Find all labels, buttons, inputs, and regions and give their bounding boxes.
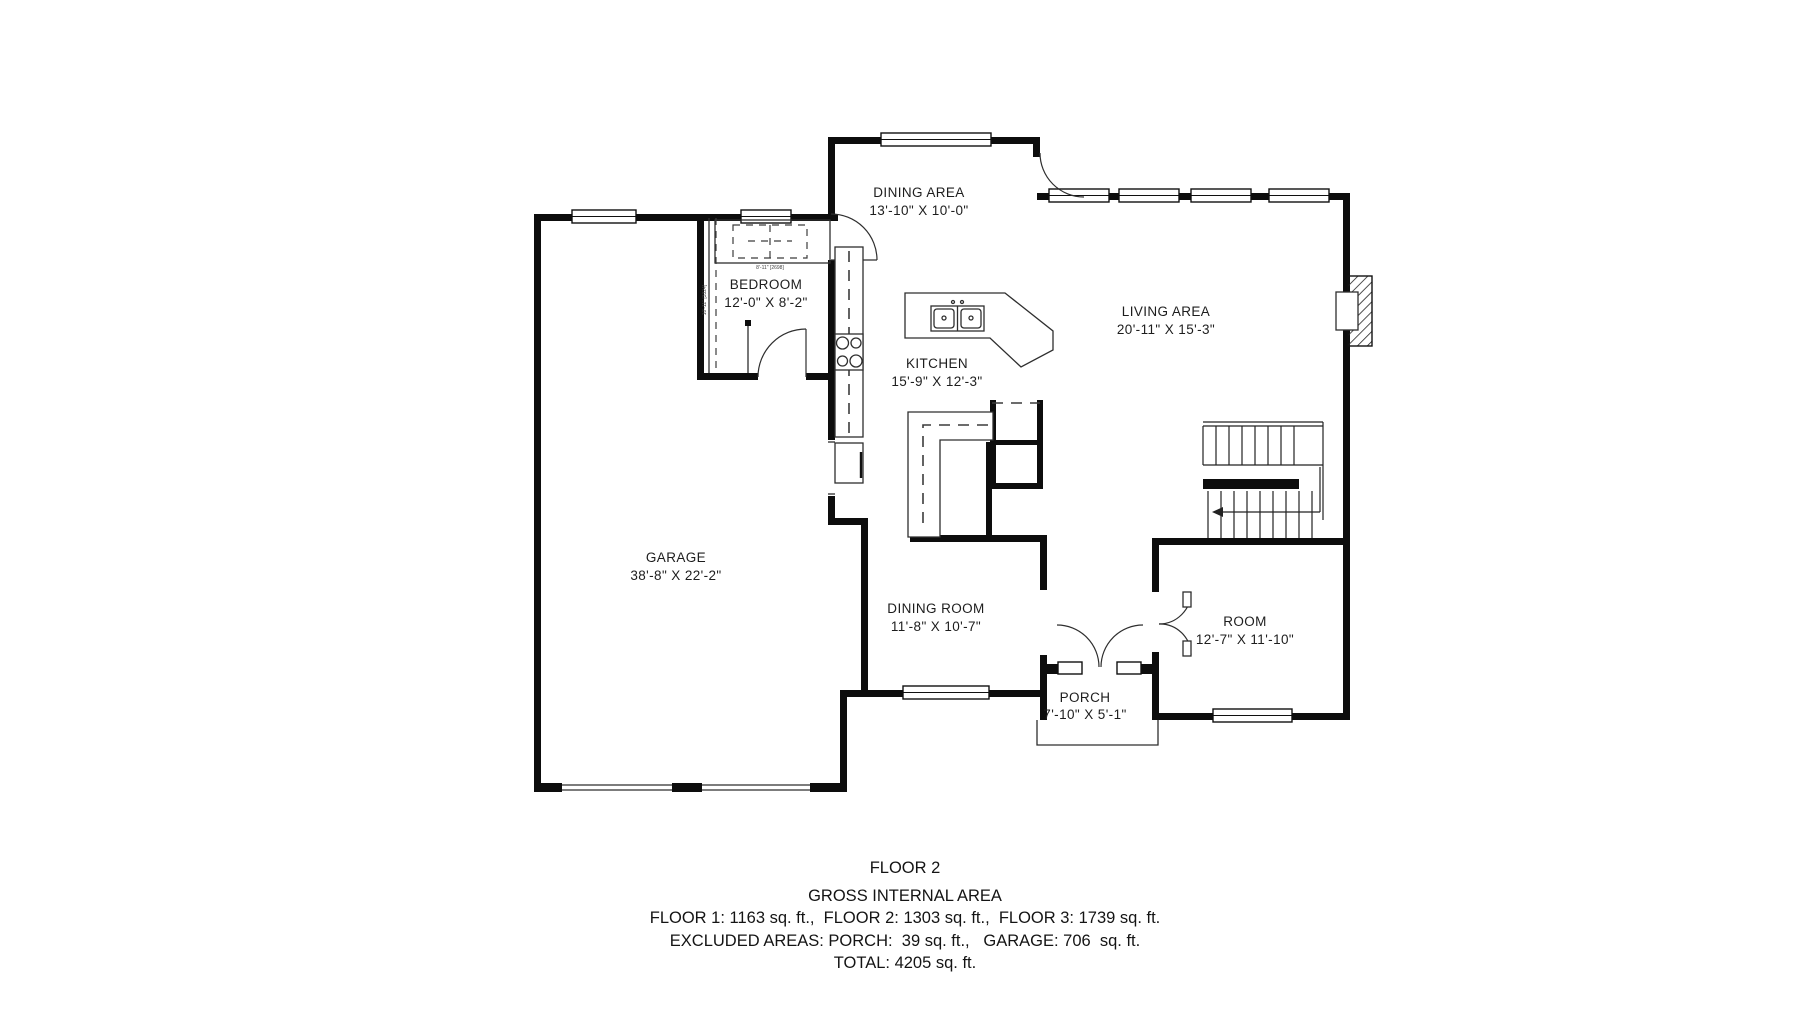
hall-closet <box>835 443 863 483</box>
living-area-window-2 <box>1119 189 1179 202</box>
bed-platform <box>715 220 830 263</box>
porch-entry-doors <box>1057 625 1143 667</box>
hall-closet-door <box>828 442 835 494</box>
porch-door-leaf-left <box>1058 662 1082 674</box>
svg-text:DINING AREA: DINING AREA <box>873 185 964 200</box>
living-area-window-1 <box>1049 189 1109 202</box>
stove <box>835 334 863 370</box>
label-dining-area: DINING AREA 13'-10" X 10'-0" <box>869 185 968 218</box>
svg-text:BEDROOM: BEDROOM <box>730 277 803 292</box>
closet-dimension-label: 10'-11" [3324] <box>702 284 708 315</box>
dining-area-window <box>881 133 991 146</box>
svg-text:7'-10" X 5'-1": 7'-10" X 5'-1" <box>1043 707 1126 722</box>
doors-layer <box>745 153 1191 667</box>
svg-text:GARAGE: GARAGE <box>646 550 706 565</box>
svg-text:KITCHEN: KITCHEN <box>906 356 968 371</box>
total-area-line: TOTAL: 4205 sq. ft. <box>650 952 1161 975</box>
bedroom-door <box>758 329 806 377</box>
svg-text:20'-11" X 15'-3": 20'-11" X 15'-3" <box>1117 322 1215 337</box>
area-summary: FLOOR 2 GROSS INTERNAL AREA FLOOR 1: 116… <box>650 857 1161 975</box>
living-area-window-3 <box>1191 189 1251 202</box>
label-kitchen: KITCHEN 15'-9" X 12'-3" <box>891 356 982 389</box>
stair-direction-arrow <box>1212 467 1320 517</box>
svg-text:12'-0" X 8'-2": 12'-0" X 8'-2" <box>724 295 807 310</box>
floor-title: FLOOR 2 <box>650 857 1161 880</box>
staircase <box>1203 422 1323 538</box>
label-garage: GARAGE 38'-8" X 22'-2" <box>630 550 721 583</box>
label-porch: PORCH 7'-10" X 5'-1" <box>1043 690 1126 722</box>
porch-door-leaf-right <box>1117 662 1141 674</box>
svg-text:13'-10" X 10'-0": 13'-10" X 10'-0" <box>869 203 968 218</box>
room-double-door <box>1159 592 1191 656</box>
label-dining-room: DINING ROOM 11'-8" X 10'-7" <box>887 601 984 634</box>
kitchen-fixtures <box>835 247 1053 537</box>
gross-internal-area-heading: GROSS INTERNAL AREA <box>650 885 1161 908</box>
svg-text:11'-8" X 10'-7": 11'-8" X 10'-7" <box>891 619 981 634</box>
floor-plan-page: 8'-11" [2698] 10'-11" [3324] DINING AREA… <box>0 0 1800 1012</box>
garage-window <box>572 210 636 223</box>
room-window <box>1213 709 1292 722</box>
bed <box>733 225 807 258</box>
svg-text:DINING ROOM: DINING ROOM <box>887 601 984 616</box>
svg-text:38'-8" X 22'-2": 38'-8" X 22'-2" <box>630 568 721 583</box>
porch-outline <box>1037 720 1158 745</box>
label-bedroom: BEDROOM 12'-0" X 8'-2" <box>724 277 807 310</box>
bedroom-window <box>741 210 791 223</box>
bedroom-closet-door <box>745 320 751 373</box>
room-labels: DINING AREA 13'-10" X 10'-0" BEDROOM 12'… <box>630 185 1294 722</box>
living-area-window-4 <box>1269 189 1329 202</box>
bed-dimension-label: 8'-11" [2698] <box>756 265 784 271</box>
floor-areas-line: FLOOR 1: 1163 sq. ft., FLOOR 2: 1303 sq.… <box>650 907 1161 930</box>
svg-text:12'-7" X 11'-10": 12'-7" X 11'-10" <box>1196 632 1294 647</box>
label-room: ROOM 12'-7" X 11'-10" <box>1196 614 1294 647</box>
stair-wall <box>1203 479 1299 489</box>
svg-text:ROOM: ROOM <box>1223 614 1267 629</box>
svg-text:LIVING AREA: LIVING AREA <box>1122 304 1210 319</box>
label-living-area: LIVING AREA 20'-11" X 15'-3" <box>1117 304 1215 337</box>
svg-text:PORCH: PORCH <box>1060 690 1111 705</box>
svg-text:15'-9" X 12'-3": 15'-9" X 12'-3" <box>891 374 982 389</box>
excluded-areas-line: EXCLUDED AREAS: PORCH: 39 sq. ft., GARAG… <box>650 930 1161 953</box>
pantry-counter <box>908 412 993 537</box>
fireplace <box>1336 276 1372 346</box>
dining-room-window <box>903 686 989 699</box>
